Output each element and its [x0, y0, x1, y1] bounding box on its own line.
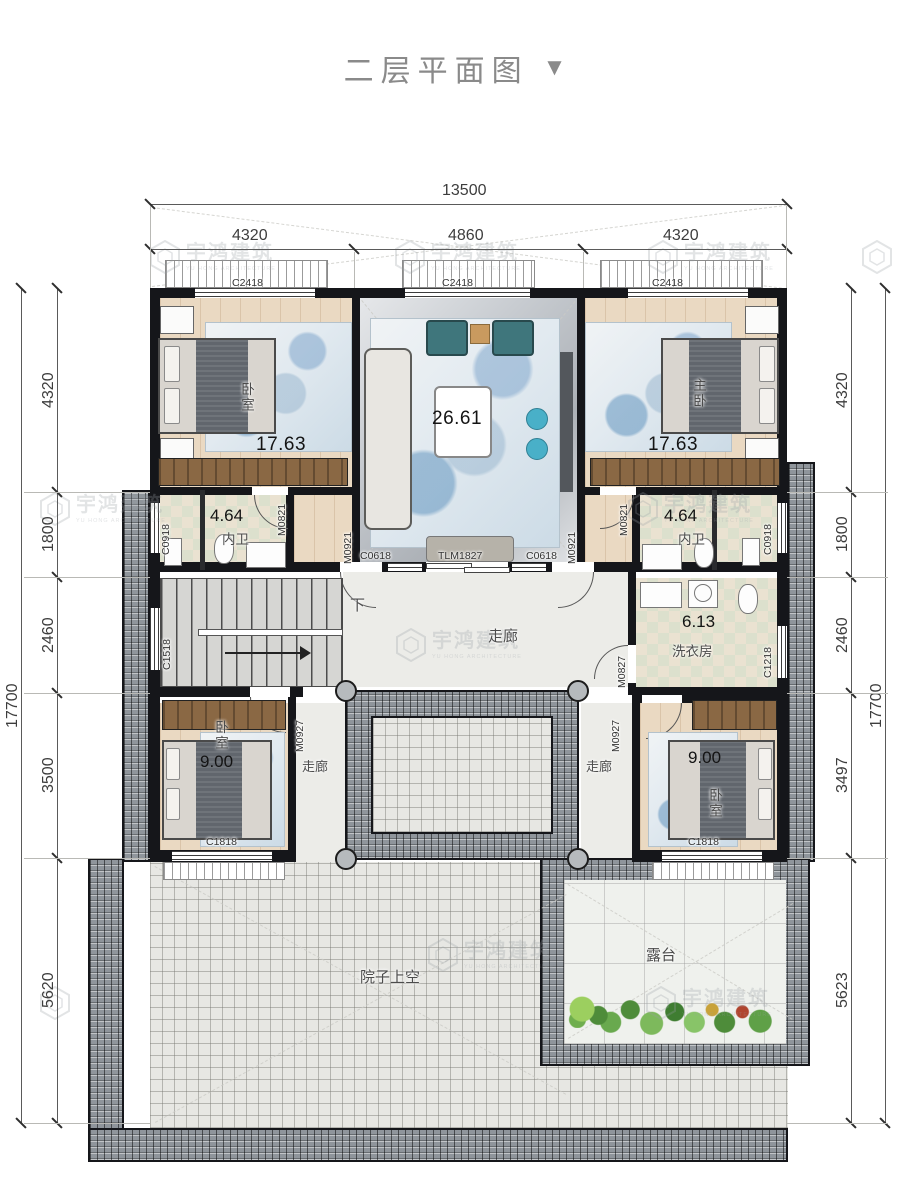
railing-bottom-right	[652, 862, 774, 880]
chevron-down-icon: ▼	[543, 54, 567, 82]
tag-m0827: M0827	[616, 646, 628, 688]
area-living: 26.61	[432, 408, 482, 430]
dim-right-seg-2: 1800	[834, 502, 852, 566]
tag-m0927-left: M0927	[294, 706, 306, 752]
dim-left-seg-5: 5620	[40, 958, 58, 1022]
window-c1218	[777, 626, 787, 678]
dim-extension	[786, 206, 787, 288]
dim-extension	[787, 693, 888, 694]
shower-tray	[246, 542, 286, 568]
dim-extension	[787, 577, 888, 578]
dim-extension	[24, 492, 150, 493]
dim-extension	[24, 693, 150, 694]
area-laundry: 6.13	[682, 612, 715, 632]
dim-extension	[787, 858, 888, 859]
wardrobe	[692, 700, 777, 730]
tag-m0821-right: M0821	[618, 492, 630, 536]
window-c0618-left	[388, 563, 422, 571]
dim-top-seg-2: 4860	[448, 227, 484, 245]
terrace-plants	[600, 990, 778, 1042]
door-gap-bedroom-lr	[642, 695, 682, 703]
sink	[742, 538, 760, 566]
floor-corridor-lower-right	[581, 703, 632, 862]
area-bath-right: 4.64	[664, 506, 697, 526]
dim-left-total: 17700	[4, 666, 22, 746]
nightstand	[745, 306, 779, 334]
tag-c2418-right: C2418	[652, 277, 683, 289]
toilet	[738, 584, 758, 614]
dim-line-top-segments	[150, 249, 787, 250]
roof-band-left-thin	[122, 490, 150, 862]
wall-bath-left-divider	[200, 490, 205, 570]
room-label-courtyard: 院子上空	[360, 966, 420, 987]
dim-left-seg-1: 4320	[40, 358, 58, 422]
room-label-bath-left: 内卫	[222, 528, 249, 548]
tag-c1218: C1218	[762, 628, 774, 678]
stair-direction-arrow	[300, 646, 311, 660]
area-bedroom-ul: 17.63	[256, 434, 306, 456]
armchair	[426, 320, 468, 356]
window-c0918-right	[777, 503, 787, 553]
dim-extension	[354, 252, 355, 288]
side-table	[470, 324, 490, 344]
nightstand	[160, 306, 194, 334]
pillow	[759, 388, 775, 424]
stairs-down-label: 下	[350, 594, 365, 615]
pillow	[758, 788, 772, 820]
roof-band-bottom	[88, 1128, 788, 1162]
column	[335, 680, 357, 702]
room-label-bedroom-ll: 卧室	[210, 720, 230, 751]
room-label-bedroom-ur: 主卧	[688, 378, 708, 409]
tag-m0921-left: M0921	[342, 518, 354, 564]
window-c1518	[150, 608, 160, 670]
pillow	[166, 788, 180, 820]
sofa	[364, 348, 412, 530]
stair-landing-rail	[198, 629, 343, 636]
pillow	[164, 346, 180, 382]
door-gap-bedroom-ll	[250, 687, 290, 697]
room-label-corridor-middle: 走廊	[488, 625, 518, 646]
tag-c1818-left: C1818	[206, 836, 237, 848]
stool	[526, 438, 548, 460]
area-bath-left: 4.64	[210, 506, 243, 526]
dim-top-total: 13500	[442, 182, 487, 200]
dim-left-seg-2: 1800	[40, 502, 58, 566]
armchair	[492, 320, 534, 356]
wall-interior-right	[577, 288, 585, 572]
area-bedroom-lr: 9.00	[688, 748, 721, 768]
window-c2418-left	[195, 288, 315, 298]
tag-m0821-left: M0821	[276, 492, 288, 536]
window-c0618-right	[512, 563, 546, 571]
window-c1818-right	[662, 851, 762, 861]
terrace-plant-cluster	[566, 986, 612, 1028]
laundry-sink	[640, 582, 682, 608]
dim-extension	[787, 492, 888, 493]
stair-direction-line	[225, 652, 303, 654]
dim-right-seg-4: 3497	[834, 743, 852, 807]
watermark	[862, 240, 892, 274]
dim-extension	[24, 858, 150, 859]
dim-top-seg-1: 4320	[232, 227, 268, 245]
dim-extension	[24, 1123, 150, 1124]
column	[567, 848, 589, 870]
dim-right-seg-5: 5623	[834, 958, 852, 1022]
tag-m0927-right: M0927	[610, 706, 622, 752]
wall-laundry-bottom	[628, 687, 787, 695]
dim-left-seg-4: 3500	[40, 743, 58, 807]
roof-band-left-big	[88, 858, 124, 1162]
dim-top-seg-3: 4320	[663, 227, 699, 245]
tv-console	[560, 352, 573, 492]
room-label-bedroom-lr: 卧室	[704, 788, 724, 819]
room-label-corridor-left: 走廊	[302, 756, 328, 775]
area-bedroom-ll: 9.00	[200, 752, 233, 772]
dim-extension	[24, 577, 150, 578]
pillow	[759, 346, 775, 382]
room-label-bath-right: 内卫	[678, 528, 705, 548]
wall-bedroom-lr-left	[632, 695, 640, 862]
page-title-text: 二层平面图	[344, 46, 529, 90]
floor-plan-page: { "title": {"text": "二层平面图", "arrow": "▼…	[0, 0, 910, 1185]
room-label-laundry: 洗衣房	[672, 640, 713, 660]
wardrobe	[590, 458, 780, 486]
tag-m0921-right: M0921	[566, 518, 578, 564]
page-title: 二层平面图 ▼	[0, 46, 910, 90]
stool	[526, 408, 548, 430]
tag-c0918-right: C0918	[762, 505, 774, 555]
dim-right-total: 17700	[868, 666, 886, 746]
tag-c1818-right: C1818	[688, 836, 719, 848]
dim-right-seg-1: 4320	[834, 358, 852, 422]
tag-c0618-right: C0618	[526, 550, 557, 562]
tag-c2418-left: C2418	[232, 277, 263, 289]
column	[567, 680, 589, 702]
room-label-terrace: 露台	[646, 944, 676, 965]
tag-tlm1827: TLM1827	[438, 550, 482, 562]
roof-band-right-thin	[787, 462, 815, 862]
tag-c0618-left: C0618	[360, 550, 391, 562]
dim-extension	[583, 252, 584, 288]
shower-tray	[642, 544, 682, 570]
pillow	[166, 748, 180, 780]
dim-left-seg-3: 2460	[40, 603, 58, 667]
courtyard-ring-paving	[371, 716, 553, 834]
room-label-bedroom-ul: 卧室	[236, 382, 256, 413]
dim-line-top-total	[150, 204, 787, 205]
dim-extension	[150, 206, 151, 288]
pillow	[164, 388, 180, 424]
tag-c1518: C1518	[161, 612, 173, 670]
hexagon-logo-icon	[862, 240, 892, 274]
dim-extension	[787, 1123, 888, 1124]
room-label-corridor-right: 走廊	[586, 756, 612, 775]
washing-machine-drum	[694, 584, 712, 602]
window-c2418-right	[628, 288, 748, 298]
wardrobe	[158, 458, 348, 486]
dim-right-seg-3: 2460	[834, 603, 852, 667]
area-bedroom-ur: 17.63	[648, 434, 698, 456]
pillow	[758, 748, 772, 780]
window-c0918-left	[150, 503, 160, 553]
tag-c2418-center: C2418	[442, 277, 473, 289]
column	[335, 848, 357, 870]
sliding-door-leaf	[464, 567, 510, 573]
railing-bottom-left	[163, 862, 285, 880]
window-c1818-left	[172, 851, 272, 861]
window-c2418-center	[405, 288, 530, 298]
door-gap-laundry	[628, 645, 636, 683]
tag-c0918-left: C0918	[160, 505, 172, 555]
